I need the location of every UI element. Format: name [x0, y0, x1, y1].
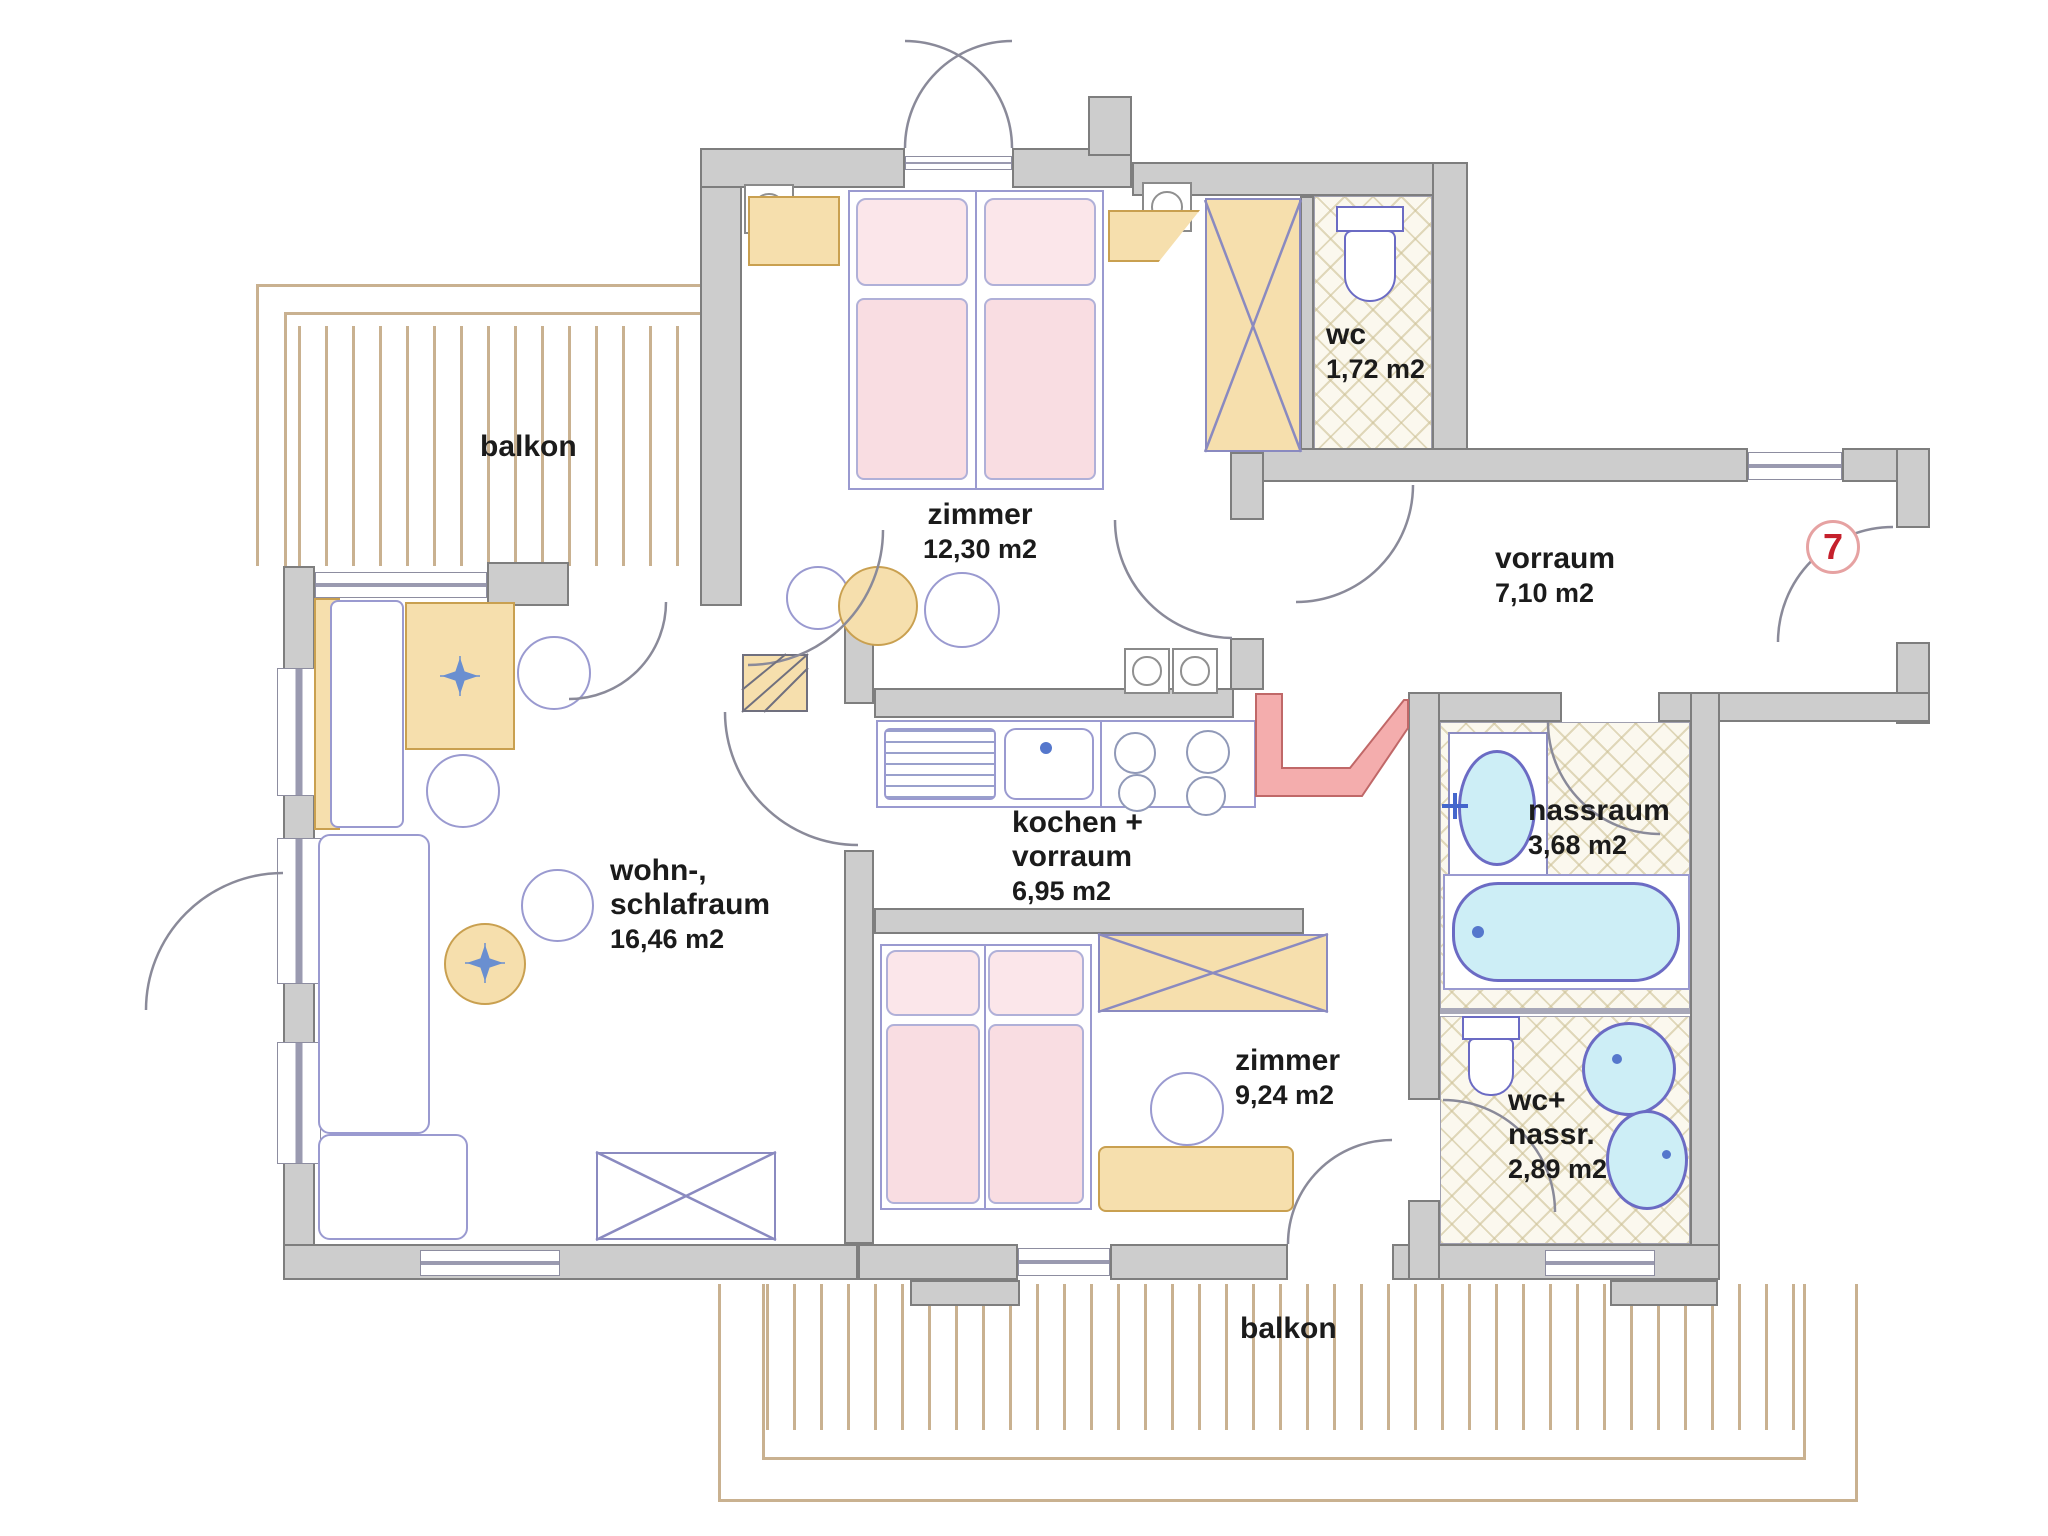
window	[277, 1042, 321, 1164]
faucet-icon	[1040, 742, 1052, 754]
drain-icon	[1472, 926, 1484, 938]
unit-number-badge: 7	[1806, 520, 1860, 574]
wall-stub	[910, 1280, 1020, 1306]
wall-stub	[1610, 1280, 1718, 1306]
room-area: 16,46 m2	[610, 922, 770, 956]
wall-segment	[1230, 638, 1264, 690]
room-label-wohn-schlafraum: wohn-, schlafraum 16,46 m2	[610, 854, 770, 956]
wall-segment	[1436, 692, 1562, 722]
room-label-kochen-vorraum: kochen + vorraum 6,95 m2	[1012, 806, 1143, 908]
mattress	[988, 1024, 1084, 1204]
room-name: nassraum	[1528, 794, 1670, 828]
wall-column	[1088, 96, 1132, 156]
room-area: 7,10 m2	[1495, 576, 1615, 610]
flue-icon	[1124, 648, 1170, 694]
toilet-tank	[1336, 206, 1404, 232]
sofa	[330, 600, 404, 828]
door-arc	[905, 41, 1012, 148]
door-arc	[1288, 1140, 1392, 1244]
door-arc	[905, 41, 1012, 148]
pillow	[984, 198, 1096, 286]
window	[315, 572, 487, 598]
room-label-zimmer1: zimmer 12,30 m2	[895, 498, 1065, 566]
brick-chimney	[1256, 694, 1408, 796]
drain-icon	[1662, 1150, 1671, 1159]
wall-segment	[1110, 1244, 1288, 1280]
room-area: 9,24 m2	[1235, 1078, 1340, 1112]
wall-pier	[487, 562, 569, 606]
wall-segment	[1230, 452, 1264, 520]
pillow	[988, 950, 1084, 1016]
wardrobe	[1098, 934, 1328, 1012]
window	[1545, 1250, 1655, 1276]
room-name: wohn-,	[610, 854, 770, 888]
washbasin	[1458, 750, 1536, 866]
window	[1748, 452, 1842, 480]
wall-segment	[844, 850, 874, 1244]
room-label-wc-nassraum: wc+ nassr. 2,89 m2	[1508, 1084, 1607, 1186]
room-label-wc: wc 1,72 m2	[1326, 318, 1425, 386]
chair	[1150, 1072, 1224, 1146]
room-name: wc+	[1508, 1084, 1607, 1118]
wall-segment	[1230, 448, 1748, 482]
room-area: 2,89 m2	[1508, 1152, 1607, 1186]
room-name: wc	[1326, 318, 1425, 352]
wall-segment	[1408, 1200, 1440, 1280]
chair	[924, 572, 1000, 648]
balcony-top-label: balkon	[480, 430, 577, 464]
wall-segment	[1408, 692, 1440, 1100]
flue-icon	[1172, 648, 1218, 694]
wall-segment	[1690, 692, 1720, 1280]
room-name: kochen +	[1012, 806, 1143, 840]
burner-icon	[1186, 730, 1230, 774]
chair	[426, 754, 500, 828]
window	[1018, 1248, 1110, 1276]
wall-segment	[1300, 196, 1314, 462]
pillow	[886, 950, 980, 1016]
room-name: zimmer	[1235, 1044, 1340, 1078]
room-area: 6,95 m2	[1012, 874, 1143, 908]
wall-segment	[858, 1244, 1018, 1280]
bathtub	[1452, 882, 1680, 982]
mattress	[984, 298, 1096, 480]
partition-wall	[1440, 1008, 1690, 1014]
room-name: vorraum	[1012, 840, 1143, 874]
sit-tub	[1606, 1110, 1688, 1210]
wall-segment	[874, 908, 1304, 934]
door-arc	[725, 712, 858, 845]
room-name: vorraum	[1495, 542, 1615, 576]
drainboard	[884, 728, 996, 800]
room-area: 12,30 m2	[895, 532, 1065, 566]
desk	[1098, 1146, 1294, 1212]
balcony-bottom-label: balkon	[1240, 1312, 1337, 1346]
bed-divider	[984, 944, 986, 1210]
toilet-bowl	[1344, 230, 1396, 302]
room-area: 1,72 m2	[1326, 352, 1425, 386]
window	[277, 838, 321, 984]
sofa	[318, 834, 430, 1134]
bed-divider	[975, 190, 977, 490]
table	[405, 602, 515, 750]
door-arc	[1296, 485, 1413, 602]
toilet-tank	[1462, 1016, 1520, 1040]
mattress	[886, 1024, 980, 1204]
floor-plan: balkon balkon	[0, 0, 2048, 1536]
chair	[521, 869, 594, 942]
drain-icon	[1612, 1054, 1622, 1064]
round-table	[838, 566, 918, 646]
room-name: zimmer	[895, 498, 1065, 532]
mattress	[856, 298, 968, 480]
wall-segment	[1896, 448, 1930, 528]
wardrobe	[1205, 198, 1301, 452]
shelf-hatched	[742, 654, 808, 712]
burner-icon	[1114, 732, 1156, 774]
room-label-nassraum: nassraum 3,68 m2	[1528, 794, 1670, 862]
wall-segment	[283, 1244, 858, 1280]
window	[420, 1250, 560, 1276]
wall-segment	[1432, 162, 1468, 462]
door-panel	[905, 156, 1012, 170]
sideboard	[596, 1152, 776, 1240]
room-name: schlafraum	[610, 888, 770, 922]
round-table	[444, 923, 526, 1005]
corner-shelf	[1108, 210, 1200, 262]
wall-segment	[700, 148, 742, 606]
door-arc	[146, 873, 283, 1010]
room-label-vorraum: vorraum 7,10 m2	[1495, 542, 1615, 610]
room-name: nassr.	[1508, 1118, 1607, 1152]
burner-icon	[1186, 776, 1226, 816]
room-area: 3,68 m2	[1528, 828, 1670, 862]
chair	[517, 636, 591, 710]
sofa	[318, 1134, 468, 1240]
kitchen-sink	[1004, 728, 1094, 800]
door-arc	[1115, 520, 1232, 638]
wall-segment	[700, 148, 905, 188]
room-label-zimmer2: zimmer 9,24 m2	[1235, 1044, 1340, 1112]
nightstand	[748, 196, 840, 266]
pillow	[856, 198, 968, 286]
